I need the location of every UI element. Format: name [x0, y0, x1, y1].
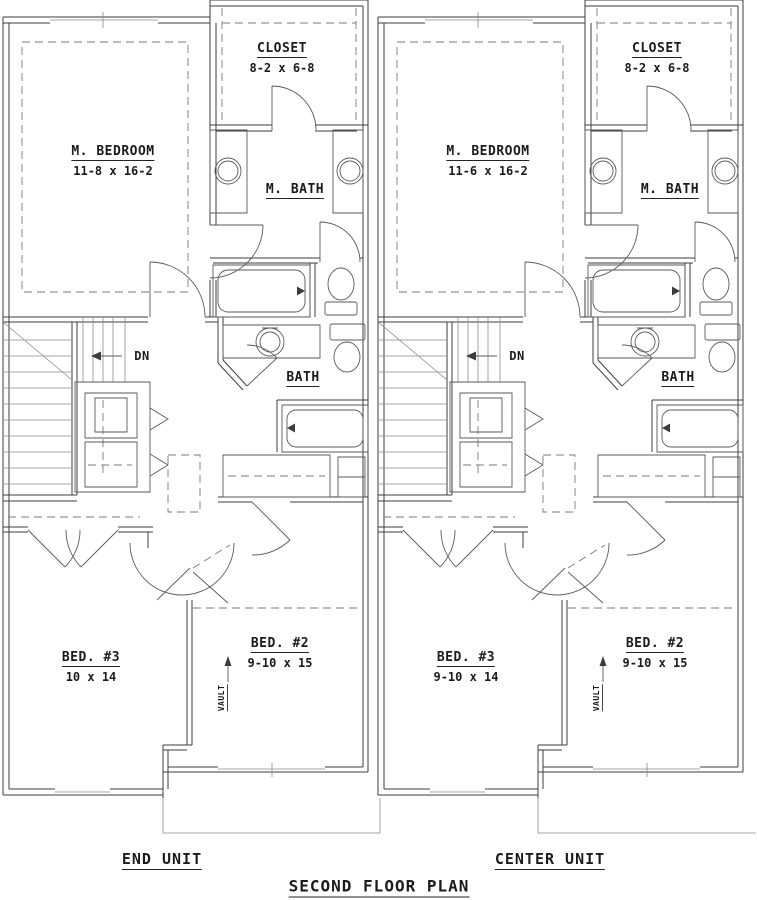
center-unit-bed3-label: BED. #3 [437, 651, 495, 667]
end-unit-bed2-dims: 9-10 x 15 [247, 657, 312, 669]
center-unit-closet-label: CLOSET [632, 42, 682, 58]
end-unit-bed3-label: BED. #3 [62, 651, 120, 667]
end-unit-stairs-dn-label: DN [134, 350, 149, 362]
center-unit-bed2-dims: 9-10 x 15 [622, 657, 687, 669]
end-unit-closet-label: CLOSET [257, 42, 307, 58]
end-unit-name: END UNIT [122, 852, 202, 870]
end-unit-m-bedroom-label: M. BEDROOM [71, 145, 154, 161]
end-unit-m-bath-label: M. BATH [266, 183, 324, 199]
center-unit-m-bedroom-label: M. BEDROOM [446, 145, 529, 161]
center-unit-name: CENTER UNIT [495, 852, 605, 870]
center-unit-vault-label: VAULT [593, 685, 603, 712]
floor-plan-linework [0, 0, 757, 900]
center-unit-m-bath-label: M. BATH [641, 183, 699, 199]
end-unit-bed3-dims: 10 x 14 [66, 671, 117, 683]
end-unit-vault-label: VAULT [218, 685, 228, 712]
end-unit-closet-dims: 8-2 x 6-8 [249, 62, 314, 74]
center-unit-stairs-dn-label: DN [509, 350, 524, 362]
center-unit-bed3-dims: 9-10 x 14 [433, 671, 498, 683]
end-unit-bed2-label: BED. #2 [251, 637, 309, 653]
center-unit-m-bedroom-dims: 11-6 x 16-2 [448, 165, 527, 177]
end-unit-m-bedroom-dims: 11-8 x 16-2 [73, 165, 152, 177]
end-unit-bath-label: BATH [286, 371, 319, 387]
center-unit-bath-label: BATH [661, 371, 694, 387]
center-unit-closet-dims: 8-2 x 6-8 [624, 62, 689, 74]
floor-plan-canvas: CLOSET 8-2 x 6-8 M. BEDROOM 11-8 x 16-2 … [0, 0, 757, 900]
plan-title: SECOND FLOOR PLAN [289, 879, 470, 898]
center-unit-bed2-label: BED. #2 [626, 637, 684, 653]
